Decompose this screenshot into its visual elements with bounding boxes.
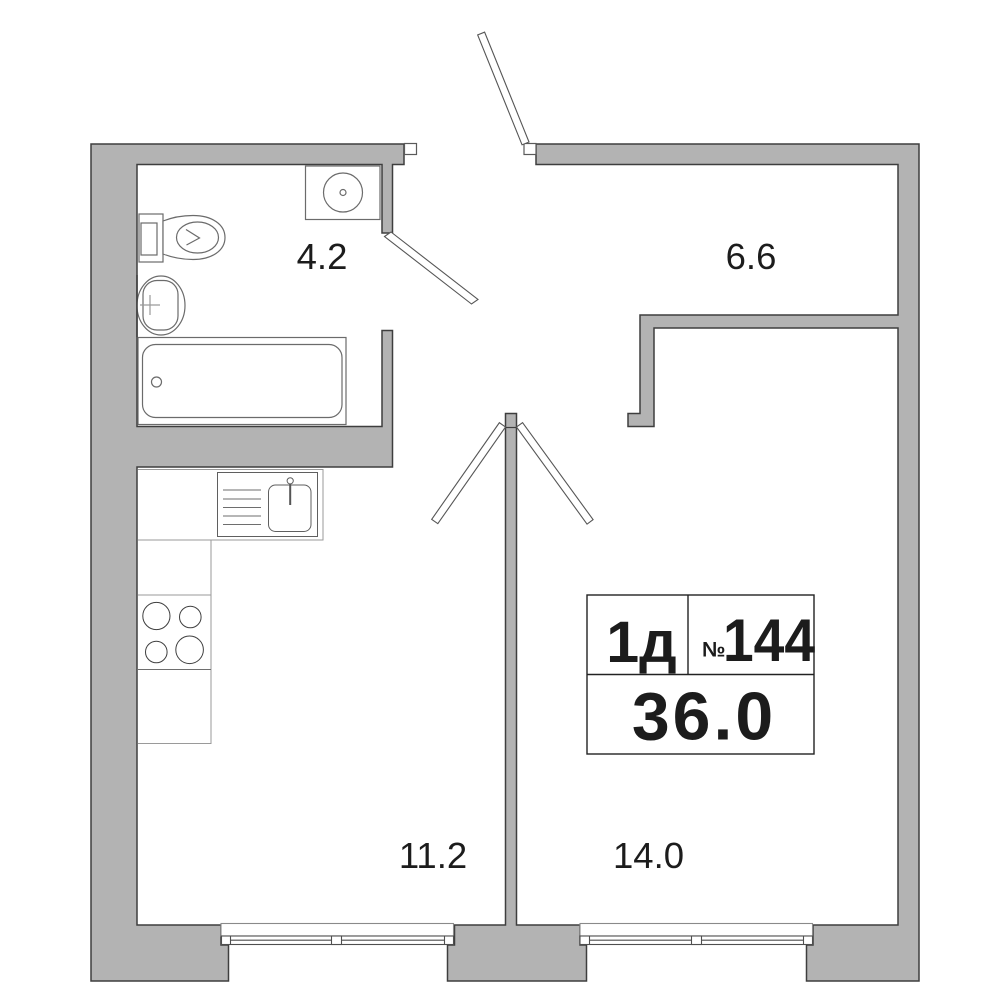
svg-text:№: № <box>702 639 725 662</box>
svg-text:4.2: 4.2 <box>297 236 348 277</box>
svg-text:144: 144 <box>723 608 815 675</box>
svg-text:1д: 1д <box>606 611 676 675</box>
svg-text:11.2: 11.2 <box>399 835 467 876</box>
svg-text:14.0: 14.0 <box>613 835 684 876</box>
svg-text:36.0: 36.0 <box>632 679 776 755</box>
svg-text:6.6: 6.6 <box>726 236 777 277</box>
